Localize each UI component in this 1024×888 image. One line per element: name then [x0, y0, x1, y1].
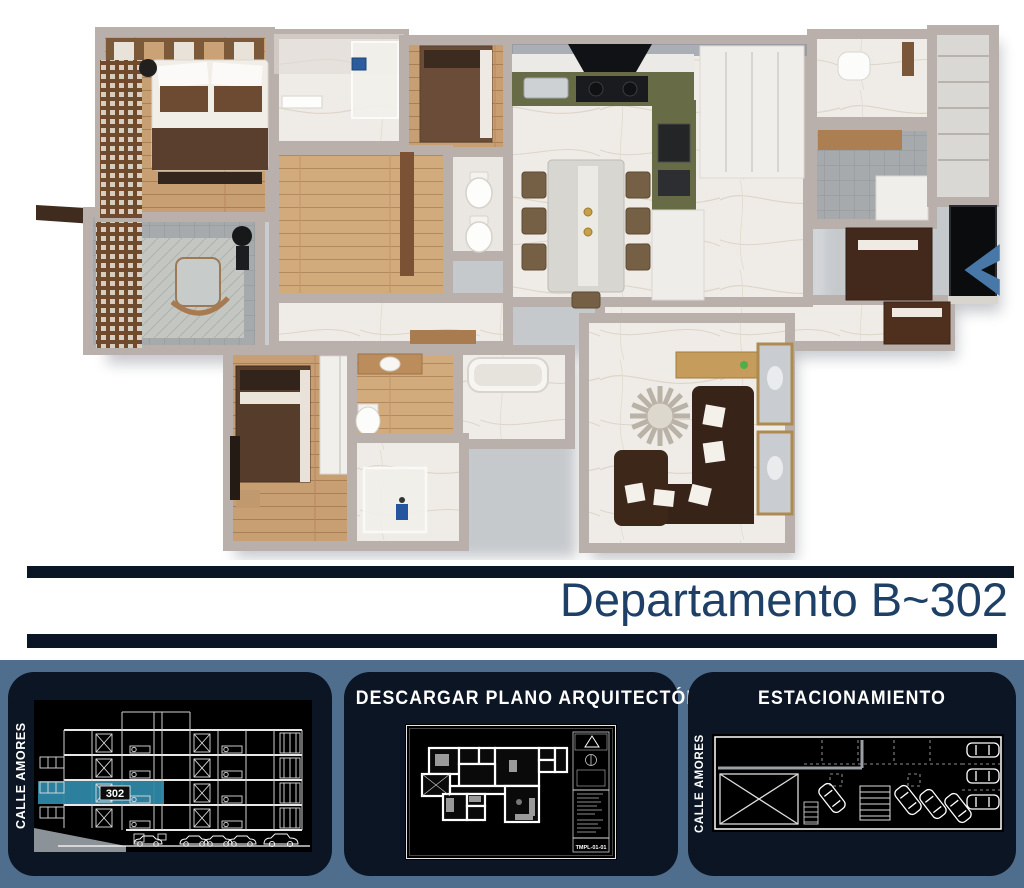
utility-room	[812, 126, 932, 224]
shower-glass	[364, 468, 426, 532]
kitchen-sink	[524, 78, 568, 98]
dining-table	[548, 160, 624, 292]
bedroom-guest	[404, 40, 508, 152]
terrace	[36, 205, 260, 350]
closet-room	[932, 30, 994, 202]
bed-master	[152, 60, 268, 184]
building-section-drawing: 302	[34, 700, 312, 852]
page: Departamento B~302 CALLE AMORES	[0, 0, 1024, 888]
bathroom-shower	[352, 438, 464, 546]
bathroom-1	[274, 34, 404, 146]
floorplan-render-area	[0, 0, 1024, 560]
wc-room	[448, 152, 510, 256]
plan-thumbnail: TMPL-01-01	[405, 724, 617, 860]
floorplan-render	[0, 0, 1024, 560]
chevron-left-icon	[956, 242, 1002, 298]
unit-label: 302	[106, 788, 124, 800]
download-plan-button[interactable]: DESCARGAR PLANO ARQUITECTÓNICO	[344, 672, 678, 876]
bed-third	[236, 366, 310, 482]
building-section-panel: CALLE AMORES	[8, 672, 332, 876]
oven	[658, 124, 690, 162]
street-label: CALLE AMORES	[14, 700, 28, 852]
download-title: DESCARGAR PLANO ARQUITECTÓNICO	[356, 688, 667, 710]
toilet	[466, 178, 492, 208]
parking-panel: ESTACIONAMIENTO CALLE AMORES	[688, 672, 1016, 876]
bedroom-master	[100, 32, 270, 218]
carousel-prev-arrow[interactable]	[956, 242, 1002, 298]
parking-drawing	[712, 734, 1004, 832]
sink	[380, 357, 400, 371]
bidet	[466, 222, 492, 252]
shower-glass	[352, 42, 398, 118]
bathroom-tub	[458, 350, 570, 444]
kitchen-dining	[508, 40, 808, 308]
divider-bar-bottom	[27, 634, 997, 648]
bed-guest	[420, 46, 492, 142]
page-title: Departamento B~302	[560, 572, 1008, 627]
parking-title: ESTACIONAMIENTO	[699, 688, 1004, 710]
toilet	[838, 52, 870, 80]
bedroom-third	[228, 350, 366, 546]
bathroom-2	[812, 34, 932, 122]
lattice-screen	[100, 60, 142, 218]
shower-valve	[352, 58, 366, 70]
vanity-hall	[352, 350, 462, 438]
toilet	[356, 407, 380, 435]
wood-cabinet	[846, 228, 932, 300]
hallway	[274, 150, 448, 298]
shower-valve	[396, 504, 408, 520]
footer: CALLE AMORES	[0, 660, 1024, 888]
street-label: CALLE AMORES	[694, 734, 706, 834]
sheet-code: TMPL-01-01	[576, 845, 607, 851]
